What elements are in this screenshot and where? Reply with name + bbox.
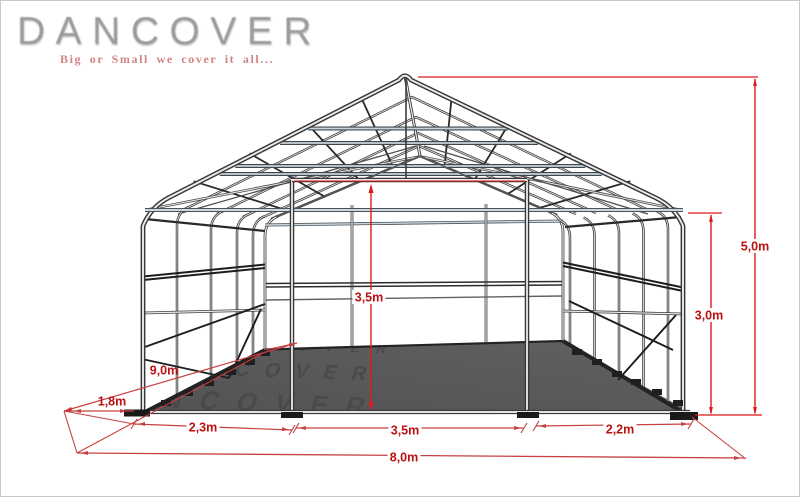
svg-text:3,0m: 3,0m bbox=[695, 309, 724, 323]
svg-text:9,0m: 9,0m bbox=[150, 364, 179, 378]
svg-text:3,5m: 3,5m bbox=[391, 424, 420, 438]
svg-text:5,0m: 5,0m bbox=[741, 240, 770, 254]
svg-text:2,3m: 2,3m bbox=[189, 421, 218, 435]
svg-text:2,2m: 2,2m bbox=[606, 423, 635, 437]
svg-text:1,8m: 1,8m bbox=[98, 395, 127, 409]
svg-text:3,5m: 3,5m bbox=[355, 291, 384, 305]
svg-text:8,0m: 8,0m bbox=[390, 451, 419, 465]
